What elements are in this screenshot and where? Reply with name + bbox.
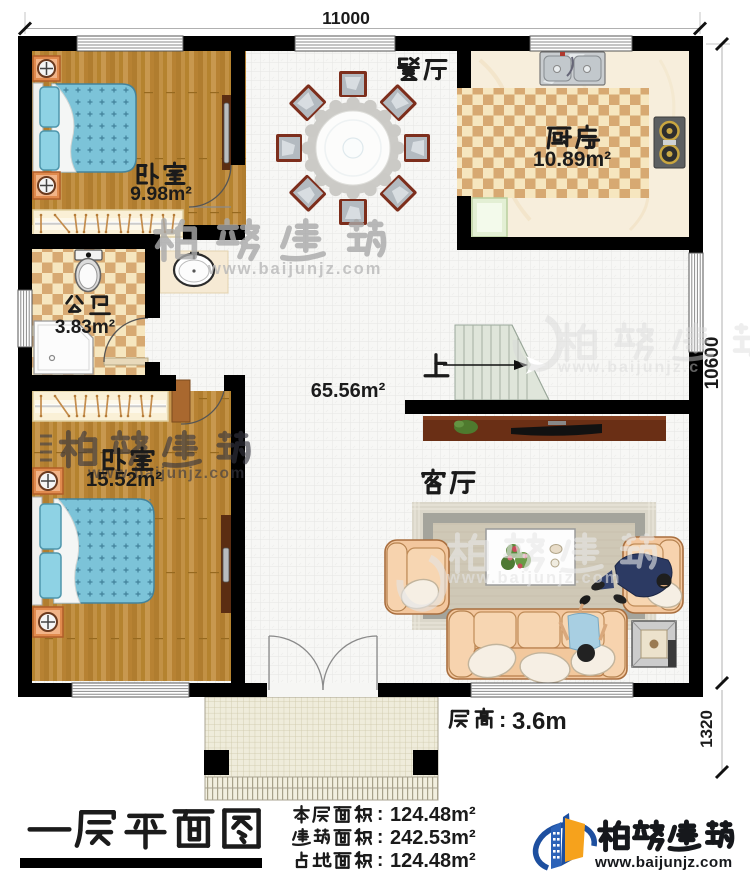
svg-text:65.56m²: 65.56m² xyxy=(311,380,386,402)
svg-text:10600: 10600 xyxy=(702,337,723,390)
svg-text::: : xyxy=(377,850,383,871)
svg-text:3.83m²: 3.83m² xyxy=(55,317,115,338)
svg-text::: : xyxy=(377,804,383,825)
svg-text::: : xyxy=(377,827,383,848)
svg-text:www.baijunjz.com: www.baijunjz.com xyxy=(207,260,382,278)
svg-text:www.baijunjz.com: www.baijunjz.com xyxy=(594,854,732,871)
svg-text:124.48m²: 124.48m² xyxy=(390,850,476,872)
svg-text::: : xyxy=(499,707,506,732)
svg-text:15.52m²: 15.52m² xyxy=(86,468,163,491)
svg-text:www.baijunjz.c: www.baijunjz.c xyxy=(557,359,700,376)
svg-text:9.98m²: 9.98m² xyxy=(130,183,192,205)
svg-text:11000: 11000 xyxy=(322,8,370,28)
svg-text:10.89m²: 10.89m² xyxy=(533,148,611,171)
svg-text:3.6m: 3.6m xyxy=(512,708,567,735)
svg-text:1320: 1320 xyxy=(697,710,716,748)
svg-text:242.53m²: 242.53m² xyxy=(390,827,476,849)
svg-text:124.48m²: 124.48m² xyxy=(390,804,476,826)
svg-text:www.baijunjz.com: www.baijunjz.com xyxy=(446,569,621,587)
